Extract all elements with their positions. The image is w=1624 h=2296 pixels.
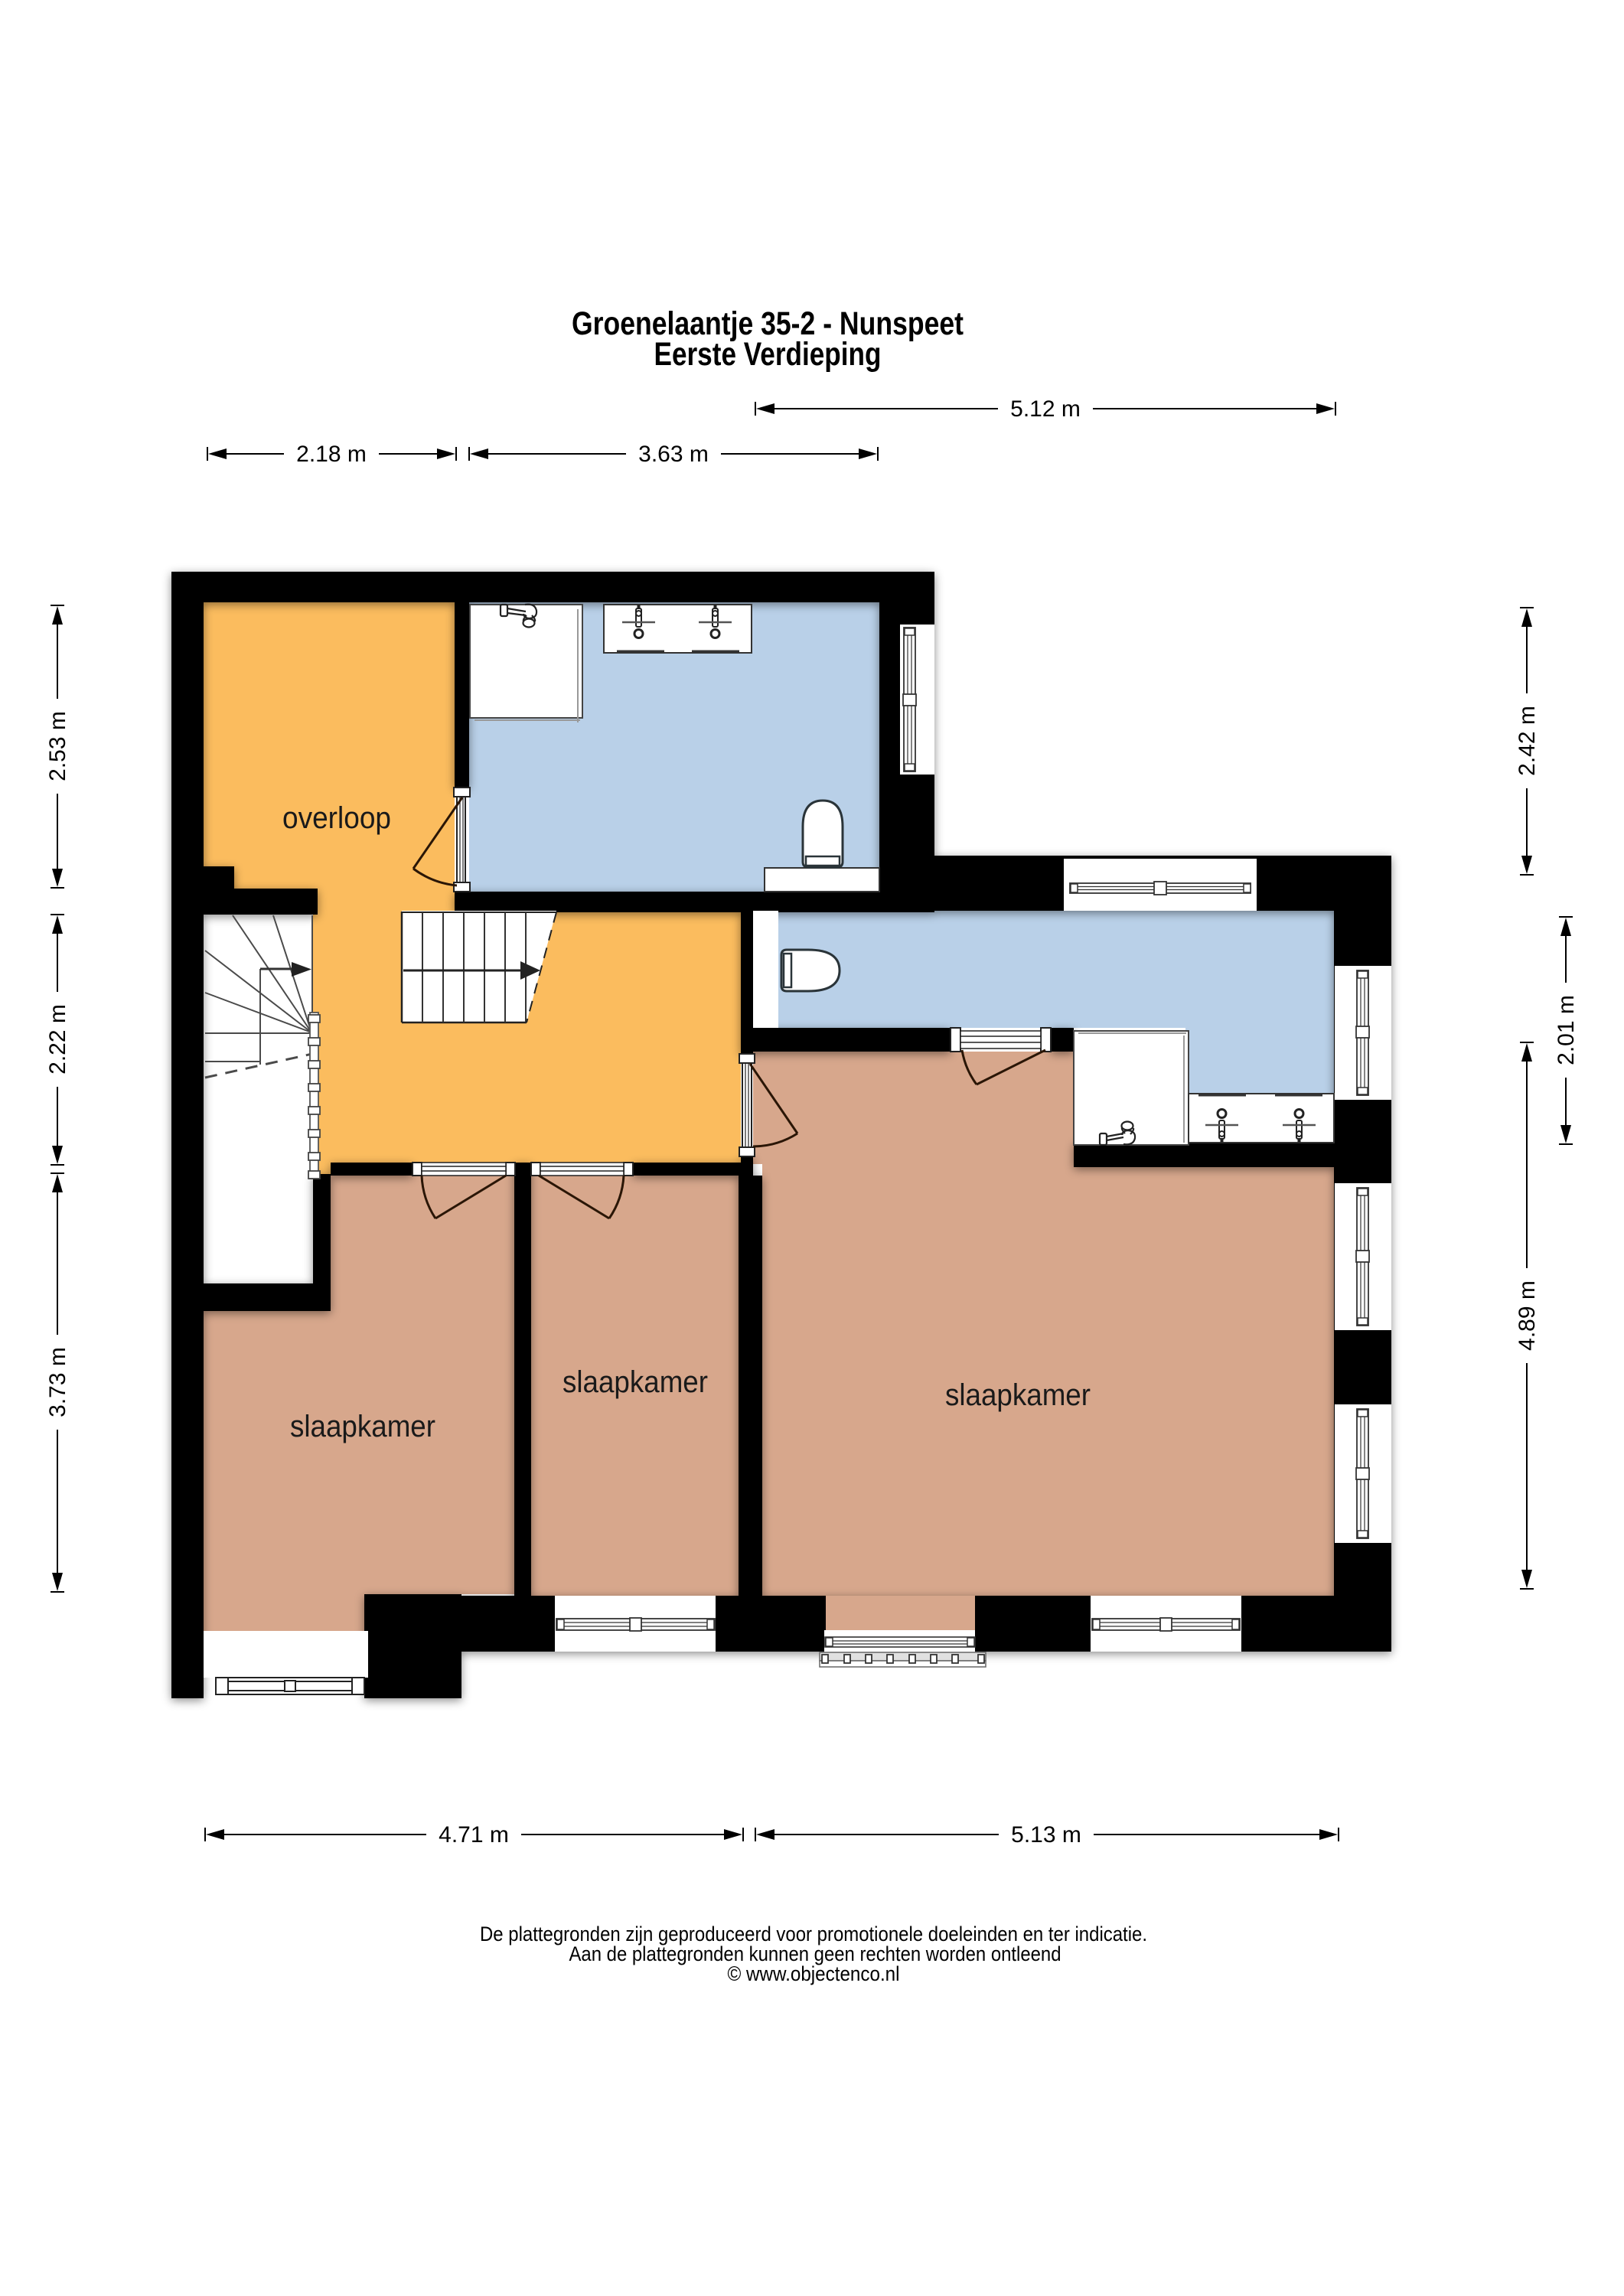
svg-text:2.01 m: 2.01 m	[1554, 995, 1579, 1065]
svg-text:overloop: overloop	[282, 801, 391, 835]
svg-text:4.89 m: 4.89 m	[1515, 1280, 1540, 1351]
svg-text:slaapkamer: slaapkamer	[945, 1378, 1091, 1412]
svg-text:Eerste Verdieping: Eerste Verdieping	[654, 336, 882, 373]
svg-text:5.12 m: 5.12 m	[1010, 396, 1081, 422]
svg-text:5.13 m: 5.13 m	[1011, 1822, 1081, 1848]
svg-text:slaapkamer: slaapkamer	[290, 1410, 435, 1443]
svg-text:2.22 m: 2.22 m	[45, 1004, 70, 1075]
svg-text:3.63 m: 3.63 m	[638, 442, 709, 467]
svg-text:2.53 m: 2.53 m	[45, 711, 70, 781]
svg-text:3.73 m: 3.73 m	[45, 1347, 70, 1417]
svg-text:2.42 m: 2.42 m	[1515, 706, 1540, 776]
svg-text:© www.objectenco.nl: © www.objectenco.nl	[728, 1962, 900, 1985]
svg-text:slaapkamer: slaapkamer	[563, 1365, 708, 1399]
svg-text:2.18 m: 2.18 m	[296, 442, 367, 467]
svg-text:4.71 m: 4.71 m	[439, 1822, 509, 1848]
